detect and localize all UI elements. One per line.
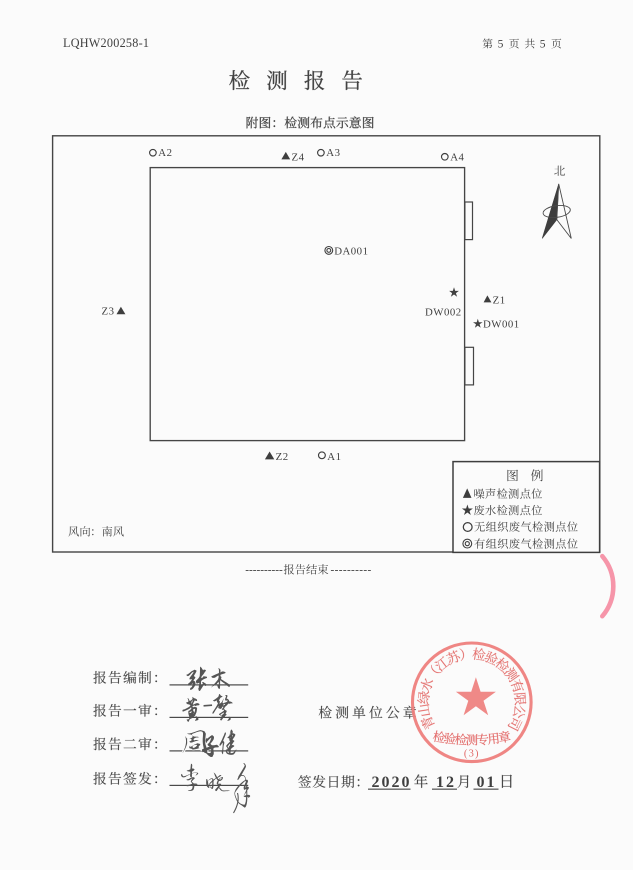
svg-text:12: 12 xyxy=(436,774,456,791)
svg-text:----------: ---------- xyxy=(245,564,283,576)
svg-text:A4: A4 xyxy=(450,151,464,163)
svg-text:01: 01 xyxy=(477,774,497,791)
svg-text:2020: 2020 xyxy=(372,774,412,791)
svg-text:DA001: DA001 xyxy=(334,245,368,257)
svg-text:5: 5 xyxy=(540,38,546,50)
svg-text:----------: ---------- xyxy=(331,564,372,576)
svg-text:A3: A3 xyxy=(326,147,340,159)
svg-text:A1: A1 xyxy=(327,451,341,463)
svg-text:Z3: Z3 xyxy=(102,306,115,318)
svg-text:Z4: Z4 xyxy=(292,151,305,163)
svg-text:DW002: DW002 xyxy=(425,306,462,318)
svg-text:(3): (3) xyxy=(464,749,480,760)
svg-text:A2: A2 xyxy=(158,147,172,159)
svg-text:LQHW200258-1: LQHW200258-1 xyxy=(63,36,149,50)
svg-text:5: 5 xyxy=(498,38,504,50)
svg-text:Z2: Z2 xyxy=(276,451,289,463)
svg-text:DW001: DW001 xyxy=(483,319,520,331)
svg-text:Z1: Z1 xyxy=(493,294,506,306)
